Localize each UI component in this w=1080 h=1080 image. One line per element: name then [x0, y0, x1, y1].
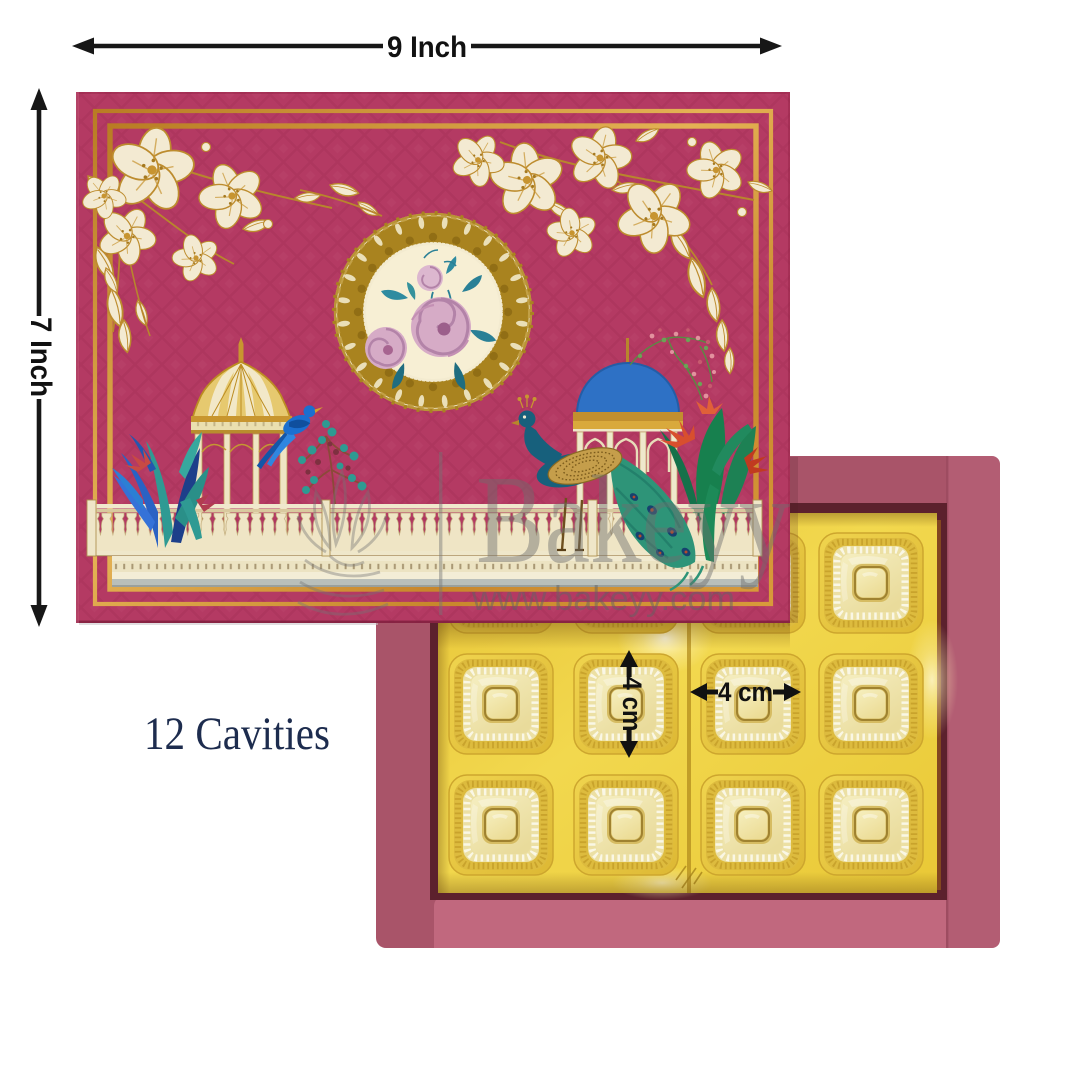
svg-text:9 Inch: 9 Inch — [387, 31, 467, 64]
svg-text:12 Cavities: 12 Cavities — [144, 708, 330, 760]
svg-text:4 cm: 4 cm — [617, 677, 647, 732]
svg-text:4 cm: 4 cm — [718, 677, 773, 707]
svg-text:Bakeyy: Bakeyy — [476, 451, 790, 590]
svg-text:www.bakeyy.com: www.bakeyy.com — [471, 580, 735, 618]
svg-text:7 Inch: 7 Inch — [24, 317, 57, 397]
